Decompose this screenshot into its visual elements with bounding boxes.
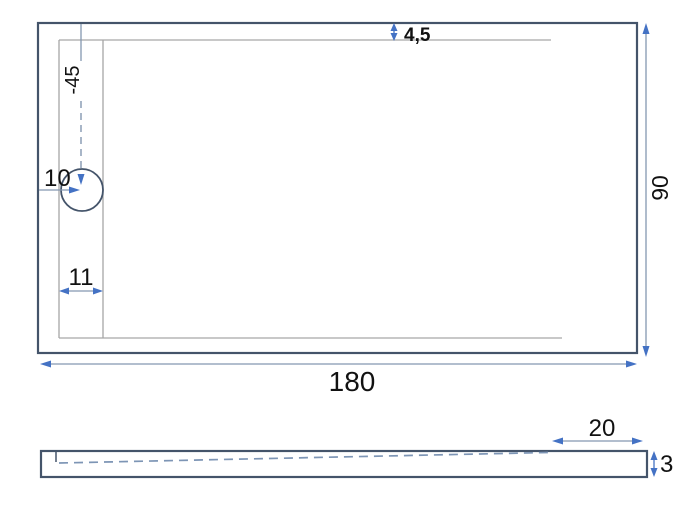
arrow-left-icon — [40, 361, 51, 368]
dim-width-label: 90 — [647, 175, 673, 201]
dim-edge-height-label: 3 — [660, 451, 673, 478]
dim-drain-diameter-label: 10 — [44, 165, 71, 192]
top-view-outline — [38, 23, 637, 353]
dim-rim-label: 4,5 — [404, 25, 431, 46]
shower-tray-technical-drawing: -45 10 4,5 90 180 — [0, 0, 700, 507]
dim-drain-edge-label: 11 — [69, 264, 94, 291]
dim-flat-edge-20: 20 — [552, 415, 643, 445]
dim-flat-edge-label: 20 — [589, 415, 616, 442]
arrow-up-icon — [651, 451, 658, 460]
arrow-down-icon — [651, 468, 658, 477]
dim-drain-offset-label: -45 — [62, 66, 84, 95]
dim-width-90: 90 — [643, 23, 674, 357]
dim-length-180: 180 — [40, 361, 637, 398]
side-view-outline — [41, 451, 647, 477]
technical-drawing-canvas: -45 10 4,5 90 180 — [0, 0, 700, 507]
arrow-down-icon — [643, 346, 650, 357]
arrow-up-icon — [643, 23, 650, 34]
dim-length-label: 180 — [329, 366, 376, 397]
dim-edge-height-3: 3 — [651, 451, 674, 478]
arrow-right-icon — [632, 438, 643, 445]
arrow-left-icon — [552, 438, 563, 445]
arrow-right-icon — [626, 361, 637, 368]
